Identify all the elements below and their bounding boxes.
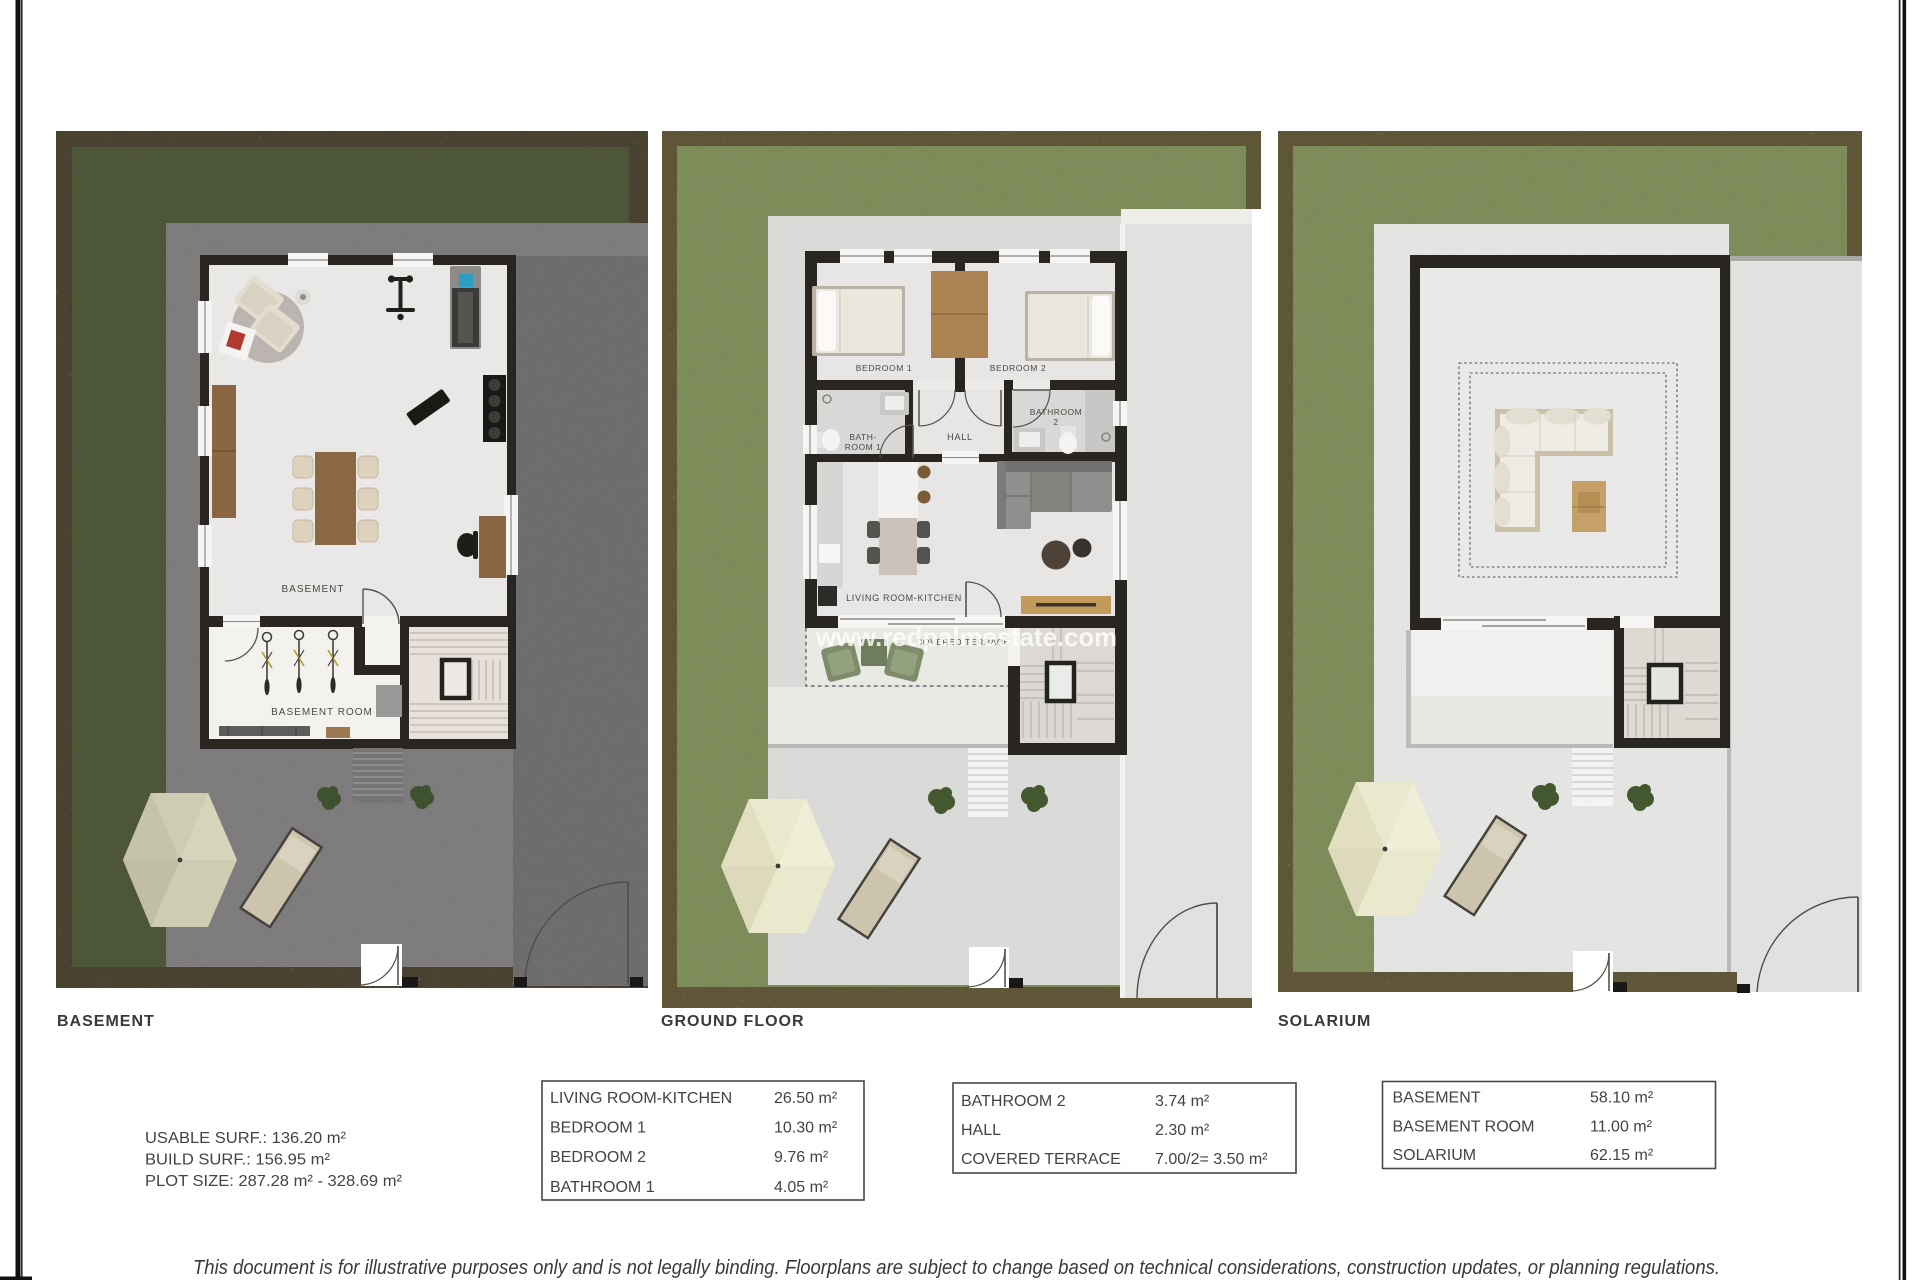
- svg-text:58.10 m²: 58.10 m²: [1590, 1090, 1654, 1107]
- svg-text:BEDROOM 2: BEDROOM 2: [550, 1149, 646, 1166]
- svg-text:7.00/2= 3.50 m²: 7.00/2= 3.50 m²: [1155, 1151, 1268, 1168]
- svg-text:BATHROOM: BATHROOM: [1030, 407, 1082, 417]
- svg-text:BEDROOM 1: BEDROOM 1: [856, 363, 912, 373]
- svg-text:GROUND FLOOR: GROUND FLOOR: [661, 1013, 805, 1030]
- svg-text:BASEMENT ROOM: BASEMENT ROOM: [271, 707, 373, 718]
- svg-text:LIVING ROOM-KITCHEN: LIVING ROOM-KITCHEN: [846, 593, 962, 603]
- svg-text:COVERED TERRACE: COVERED TERRACE: [961, 1151, 1121, 1168]
- svg-text:3.74 m²: 3.74 m²: [1155, 1093, 1210, 1110]
- svg-text:BASEMENT: BASEMENT: [1393, 1090, 1481, 1107]
- svg-text:BATHROOM 2: BATHROOM 2: [961, 1093, 1066, 1110]
- svg-text:BUILD SURF.: 156.95 m²: BUILD SURF.: 156.95 m²: [145, 1152, 331, 1169]
- svg-text:HALL: HALL: [947, 432, 973, 442]
- svg-text:ROOM 1: ROOM 1: [845, 442, 882, 452]
- svg-text:This document is for illustrat: This document is for illustrative purpos…: [193, 1257, 1720, 1279]
- svg-text:11.00 m²: 11.00 m²: [1590, 1119, 1653, 1136]
- svg-text:9.76 m²: 9.76 m²: [774, 1149, 829, 1166]
- svg-text:SOLARIUM: SOLARIUM: [1278, 1013, 1371, 1030]
- svg-text:2: 2: [1053, 417, 1058, 427]
- svg-text:BATH-: BATH-: [849, 432, 876, 442]
- svg-text:SOLARIUM: SOLARIUM: [1393, 1147, 1477, 1164]
- svg-text:PLOT SIZE: 287.28 m² - 328.69: PLOT SIZE: 287.28 m² - 328.69 m²: [145, 1173, 403, 1190]
- svg-text:62.15 m²: 62.15 m²: [1590, 1147, 1654, 1164]
- svg-text:LIVING ROOM-KITCHEN: LIVING ROOM-KITCHEN: [550, 1090, 732, 1107]
- svg-text:4.05 m²: 4.05 m²: [774, 1179, 829, 1196]
- svg-text:BATHROOM 1: BATHROOM 1: [550, 1179, 655, 1196]
- svg-text:BEDROOM 1: BEDROOM 1: [550, 1120, 646, 1137]
- svg-text:BASEMENT: BASEMENT: [57, 1013, 155, 1030]
- svg-text:BASEMENT: BASEMENT: [281, 584, 344, 595]
- svg-text:BASEMENT ROOM: BASEMENT ROOM: [1393, 1119, 1535, 1136]
- svg-text:USABLE SURF.: 136.20 m²: USABLE SURF.: 136.20 m²: [145, 1130, 347, 1147]
- svg-text:10.30 m²: 10.30 m²: [774, 1120, 838, 1137]
- svg-text:www.redpalmestate.com: www.redpalmestate.com: [815, 622, 1117, 652]
- svg-text:HALL: HALL: [961, 1122, 1001, 1139]
- svg-text:26.50 m²: 26.50 m²: [774, 1090, 838, 1107]
- svg-text:BEDROOM 2: BEDROOM 2: [990, 363, 1046, 373]
- svg-text:2.30 m²: 2.30 m²: [1155, 1122, 1210, 1139]
